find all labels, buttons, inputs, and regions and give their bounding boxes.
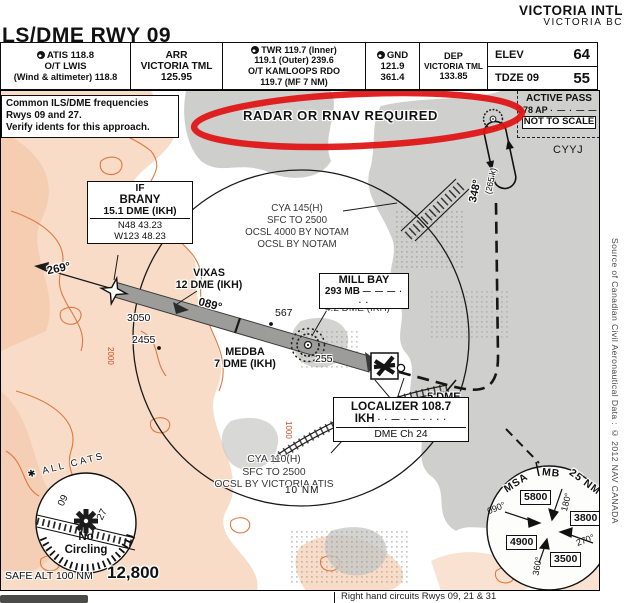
msa-sector-nw: 5800 xyxy=(520,490,551,505)
vixas-label: VIXAS 12 DME (IKH) xyxy=(159,267,259,291)
if-brany-box: IF BRANY 15.1 DME (IKH) N48 43.23 W123 4… xyxy=(87,181,193,244)
contour-label-2000: 2000 xyxy=(106,347,115,365)
cya145-note: CYA 145(H) SFC TO 2500 OCSL 4000 BY NOTA… xyxy=(216,203,378,251)
phone-icon xyxy=(377,51,385,59)
no-circling-line2: Circling xyxy=(56,544,116,557)
localizer-morse: · · — · — · · · · xyxy=(378,415,447,424)
elev-value: 64 xyxy=(573,46,590,63)
dep-line3: 133.85 xyxy=(439,71,467,81)
brany-lat: N48 43.23 xyxy=(90,219,190,231)
airport-code: CYYJ xyxy=(553,144,583,157)
medba-label: MEDBA 7 DME (IKH) xyxy=(197,346,293,371)
no-circling-line1: No xyxy=(56,531,116,544)
spot-elev-255: 255 xyxy=(315,353,333,365)
safe-alt-value: 12,800 xyxy=(107,563,159,583)
twr-box: TWR 119.7 (Inner) 119.1 (Outer) 239.6 O/… xyxy=(222,42,366,90)
spot-elev-3050: 3050 xyxy=(127,312,150,324)
localizer-dme-ch: DME Ch 24 xyxy=(336,428,466,440)
msa-sector-s: 3500 xyxy=(550,552,581,567)
gnd-line1: GND xyxy=(387,50,408,61)
airport-icon xyxy=(371,353,405,379)
no-circling-label: No Circling xyxy=(56,531,116,557)
arr-line2: VICTORIA TML xyxy=(141,61,213,72)
dep-box: DEP VICTORIA TML 133.85 xyxy=(419,42,488,90)
freq-note-line2: Rwys 09 and 27. xyxy=(6,110,174,122)
freq-note-box: Common ILS/DME frequencies Rwys 09 and 2… xyxy=(1,95,179,138)
cya110-line2: SFC TO 2500 xyxy=(191,467,357,480)
gnd-line3: 361.4 xyxy=(380,72,404,83)
contour-label-1000: 1000 xyxy=(284,421,293,439)
twr-line3: O/T KAMLOOPS RDO xyxy=(248,66,340,77)
phone-icon xyxy=(37,51,45,59)
tdze-label: TDZE 09 xyxy=(495,72,539,84)
vixas-name: VIXAS xyxy=(159,267,259,279)
msa-navaid: MB xyxy=(541,466,561,480)
twr-line4: 119.7 (MF 7 NM) xyxy=(260,77,328,88)
localizer-freq: LOCALIZER 108.7 xyxy=(336,399,466,413)
brany-lon: W123 48.23 xyxy=(90,231,190,242)
localizer-ident: IKH xyxy=(355,413,375,425)
arr-line3: 125.95 xyxy=(161,72,192,83)
msa-sector-e: 3800 xyxy=(570,511,600,526)
medba-name: MEDBA xyxy=(197,346,293,358)
arr-box: ARR VICTORIA TML 125.95 xyxy=(130,42,223,90)
dep-line1: DEP xyxy=(444,51,463,61)
approach-chart-page: VICTORIA INTL VICTORIA BC LS/DME RWY 09 … xyxy=(0,0,631,603)
millbay-name: MILL BAY xyxy=(322,274,406,286)
circling-diagram xyxy=(36,473,136,573)
atis-line1: ATIS 118.8 xyxy=(47,50,94,61)
elev-tdze-box: ELEV 64 TDZE 09 55 xyxy=(487,42,598,90)
gnd-line2: 121.9 xyxy=(380,61,404,72)
spot-elev-567: 567 xyxy=(275,307,293,319)
circuits-note: Right hand circuits Rwys 09, 21 & 31 xyxy=(334,592,607,603)
airport-city: VICTORIA BC xyxy=(543,17,623,29)
cya110-note: CYA 110(H) SFC TO 2500 OCSL BY VICTORIA … xyxy=(191,454,357,492)
atis-line3: (Wind & altimeter) 118.8 xyxy=(14,72,118,82)
brany-dme: 15.1 DME (IKH) xyxy=(90,206,190,219)
elev-label: ELEV xyxy=(495,49,524,61)
cya110-line1: CYA 110(H) xyxy=(191,454,357,467)
cya110-line3: OCSL BY VICTORIA ATIS xyxy=(191,479,357,492)
millbay-ident: 293 MB xyxy=(325,286,360,297)
atis-line2: O/T LWIS xyxy=(44,61,86,72)
cya145-line4: OCSL BY NOTAM xyxy=(216,239,378,251)
map-graphics xyxy=(1,91,600,591)
millbay-morse: — — — · · · xyxy=(359,287,403,307)
msa-sector-sw: 4900 xyxy=(506,535,537,550)
cya145-line3: OCSL 4000 BY NOTAM xyxy=(216,227,378,239)
atis-box: ATIS 118.8 O/T LWIS (Wind & altimeter) 1… xyxy=(0,42,131,90)
millbay-box: MILL BAY 293 MB — — — · · · xyxy=(319,273,409,309)
localizer-box: LOCALIZER 108.7 IKH · · — · — · · · · DM… xyxy=(333,397,469,442)
dep-line2: VICTORIA TML xyxy=(424,61,483,71)
twr-line2: 119.1 (Outer) 239.6 xyxy=(254,55,334,66)
active-pass-morse: · — · — — · xyxy=(550,106,600,115)
twr-line1: TWR 119.7 (Inner) xyxy=(261,45,337,55)
not-to-scale-note: NOT TO SCALE xyxy=(522,116,596,129)
vixas-dme: 12 DME (IKH) xyxy=(159,279,259,291)
freq-note-line1: Common ILS/DME frequencies xyxy=(6,98,174,110)
plan-view-map: Common ILS/DME frequencies Rwys 09 and 2… xyxy=(0,90,600,591)
phone-icon xyxy=(251,46,259,54)
cya145-line1: CYA 145(H) xyxy=(216,203,378,215)
active-pass-name: ACTIVE PASS xyxy=(518,93,600,105)
arr-line1: ARR xyxy=(165,50,187,61)
profile-terrain-sliver xyxy=(0,595,88,603)
if-label: IF xyxy=(90,183,190,194)
gnd-box: GND 121.9 361.4 xyxy=(365,42,420,90)
source-note: Source of Canadian Civil Aeronautical Da… xyxy=(610,238,620,524)
medba-dme: 7 DME (IKH) xyxy=(197,358,293,370)
active-pass-ident: 378 AP xyxy=(518,105,548,115)
ring-distance-label: 10 NM xyxy=(285,485,319,497)
active-pass-inset: ACTIVE PASS 378 AP · — · — — · NOT TO SC… xyxy=(517,91,600,138)
brany-name: BRANY xyxy=(90,194,190,206)
safe-alt-label: SAFE ALT 100 NM xyxy=(5,570,93,582)
spot-elev-2455: 2455 xyxy=(132,334,155,346)
tdze-value: 55 xyxy=(573,70,590,87)
freq-note-line3: Verify idents for this approach. xyxy=(6,122,174,134)
radar-rnav-note: RADAR OR RNAV REQUIRED xyxy=(243,109,438,124)
cya145-line2: SFC TO 2500 xyxy=(216,215,378,227)
